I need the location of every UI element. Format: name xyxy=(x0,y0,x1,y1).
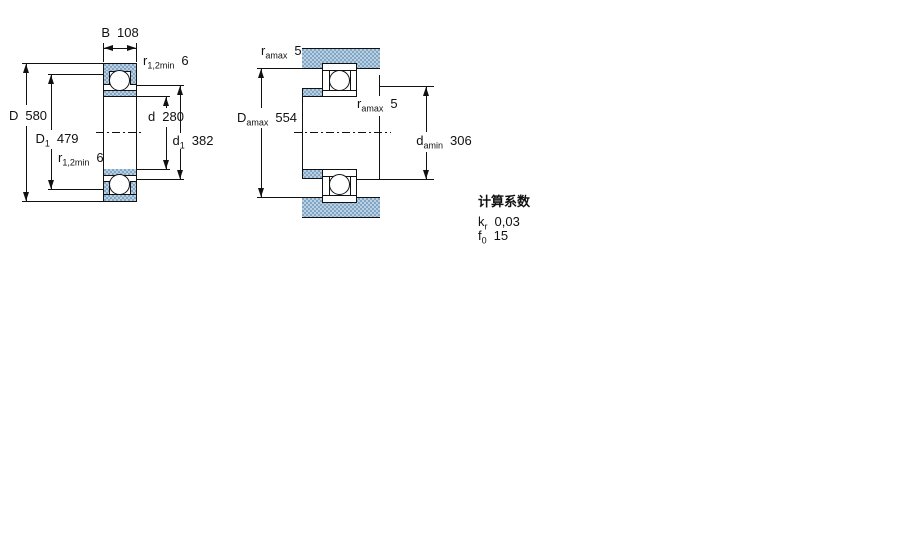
extension-line xyxy=(22,201,103,202)
shaft-shoulder-face-line xyxy=(302,88,303,179)
ball-top xyxy=(329,70,350,91)
dim-label-Damax: Damax554 xyxy=(235,111,299,130)
shaft-shoulder-bottom xyxy=(302,169,322,179)
dimension-line-D xyxy=(26,126,27,201)
extension-line xyxy=(357,179,434,180)
left-groove-shoulder xyxy=(130,181,136,195)
calculation-factors-heading: 计算系数 xyxy=(478,194,530,209)
dim-label-D: D580 xyxy=(8,109,48,128)
dim-label-damin: damin306 xyxy=(413,134,475,153)
dim-label-ramax-mid: ramax5 xyxy=(357,97,398,116)
dim-label-D1: D1479 xyxy=(34,132,80,151)
arrowhead xyxy=(104,45,113,51)
dim-label-ramax-top: ramax5 xyxy=(261,44,302,63)
dim-label-B: B108 xyxy=(100,26,140,45)
dimension-line-Damax xyxy=(261,128,262,197)
ball-bottom xyxy=(329,174,350,195)
extension-line xyxy=(137,169,170,170)
bearing-drawing-canvas: B108 r1,2min6 D580 D1479 r1,2min6 d280 d… xyxy=(0,0,900,560)
arrowhead xyxy=(423,87,429,96)
extension-line xyxy=(22,63,103,64)
extension-line xyxy=(379,116,380,180)
dim-label-r12min-top: r1,2min6 xyxy=(143,54,189,73)
arrowhead xyxy=(23,192,29,201)
ball-bottom xyxy=(109,174,130,195)
arrowhead xyxy=(258,69,264,78)
arrowhead xyxy=(258,188,264,197)
centerline xyxy=(294,132,391,133)
arrowhead xyxy=(423,170,429,179)
ring-land-line xyxy=(350,70,351,91)
arrowhead xyxy=(163,97,169,106)
left-outer-ring-bottom xyxy=(104,194,136,201)
arrowhead xyxy=(48,180,54,189)
ring-land-line xyxy=(350,176,351,195)
arrowhead xyxy=(177,86,183,95)
extension-line xyxy=(257,197,302,198)
calc-factor-f0: f015 xyxy=(478,229,508,248)
shaft-shoulder-top xyxy=(302,88,322,97)
extension-line xyxy=(137,179,184,180)
left-bore-face-line xyxy=(104,96,136,97)
dim-label-r12min-bottom: r1,2min6 xyxy=(58,151,104,170)
outer-ring-line xyxy=(323,195,356,196)
extension-line xyxy=(48,74,103,75)
extension-line xyxy=(136,43,137,62)
arrowhead xyxy=(177,170,183,179)
arrowhead xyxy=(48,75,54,84)
left-groove-shoulder xyxy=(130,71,136,85)
dim-label-d1: d1382 xyxy=(172,134,214,153)
centerline xyxy=(96,132,144,133)
arrowhead xyxy=(23,64,29,73)
ball-top xyxy=(109,70,130,91)
extension-line xyxy=(48,189,103,190)
arrowhead xyxy=(163,160,169,169)
arrowhead xyxy=(127,45,136,51)
